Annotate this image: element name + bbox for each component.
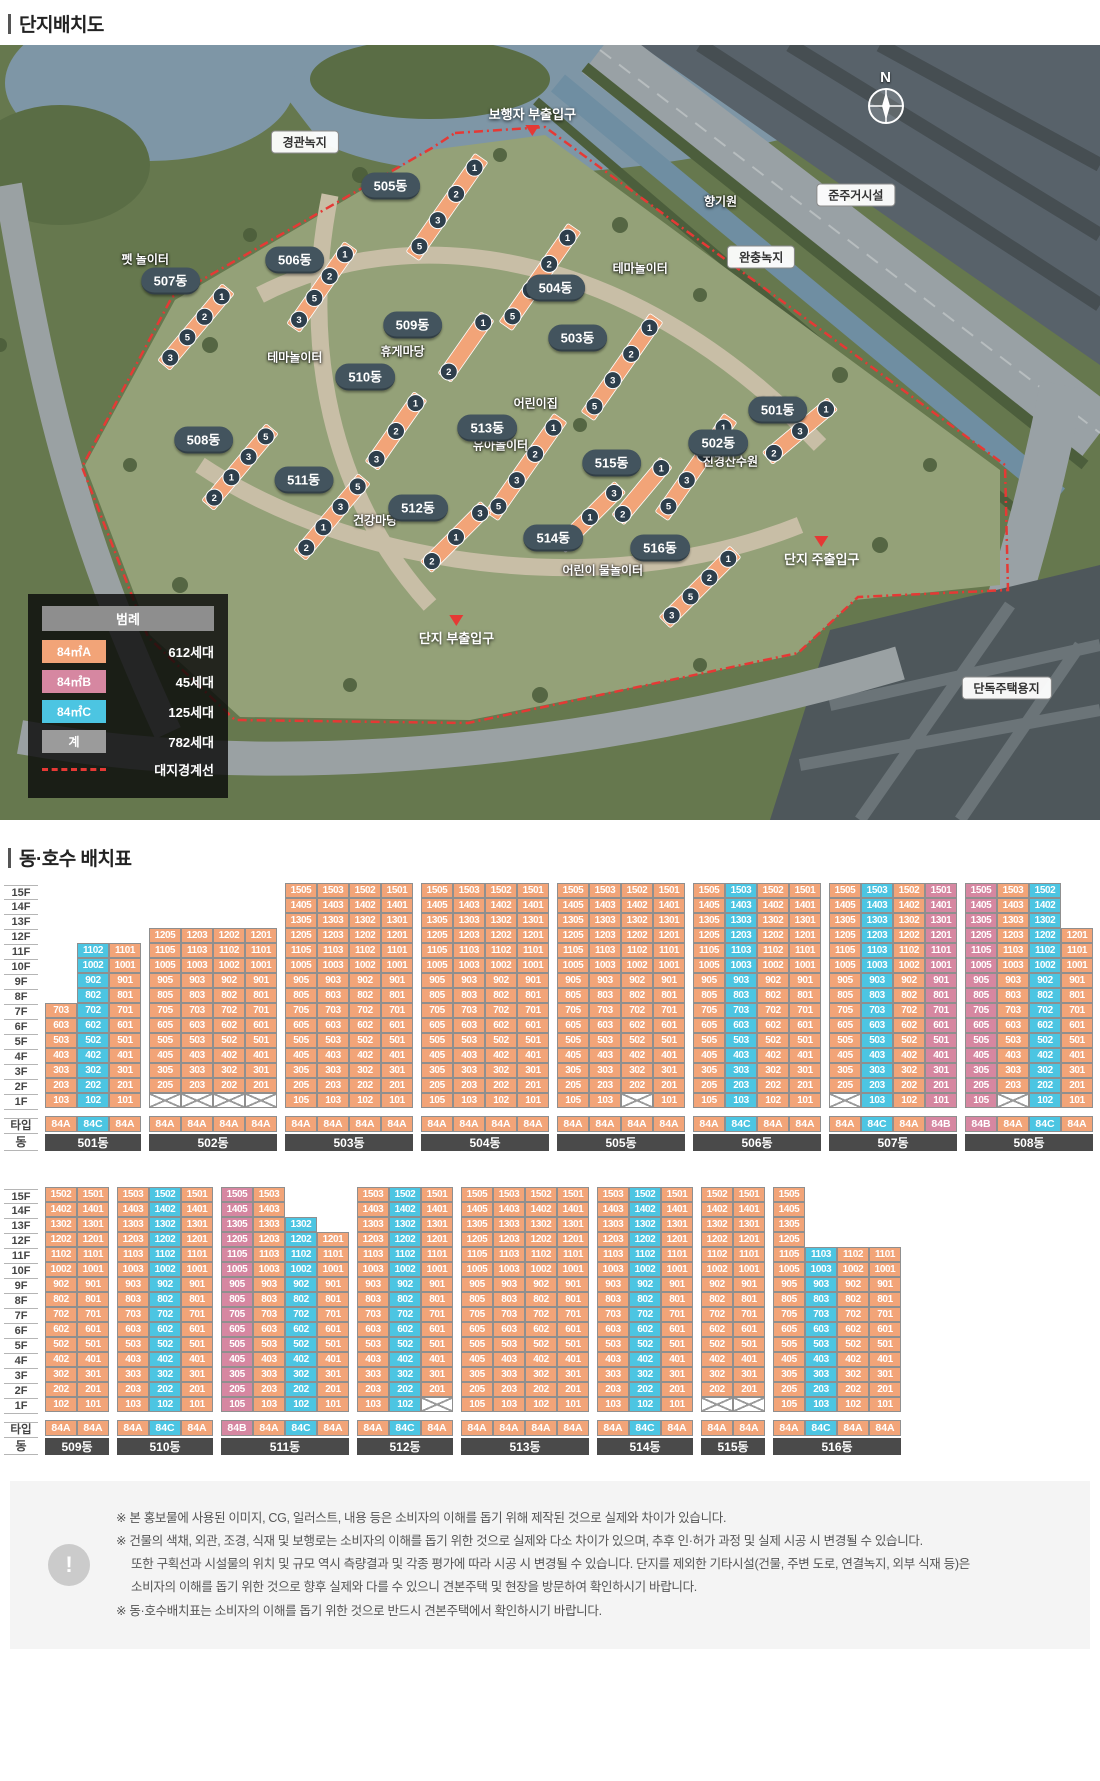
unit-cell: 902 (1029, 973, 1061, 988)
type-row: 84A84C84A84A (773, 1420, 901, 1436)
unit-cell: 1405 (557, 898, 589, 913)
floor-row: 130513031302 (965, 913, 1093, 928)
building-name-bar: 515동 (701, 1438, 765, 1455)
floor-row: 302301 (45, 1367, 109, 1382)
unit-cell: 903 (357, 1277, 389, 1292)
unit-cell: 905 (285, 973, 317, 988)
empty-slot (869, 1187, 901, 1202)
unit-cell: 1203 (589, 928, 621, 943)
unit-cell: 903 (861, 973, 893, 988)
floor-row: 1005100310021001 (557, 958, 685, 973)
unit-cell: 1502 (45, 1187, 77, 1202)
unit-cell: 605 (829, 1018, 861, 1033)
floor-row: 1005100310021001 (773, 1262, 901, 1277)
unit-cell: 301 (381, 1063, 413, 1078)
unit-cell: 205 (149, 1078, 181, 1093)
floor-row: 605603602601 (149, 1018, 277, 1033)
type-row: 84B84A84C84A (221, 1420, 349, 1436)
unit-grid-row-2: 15F14F13F12F11F10F9F8F7F6F5F4F3F2F1F타입동1… (4, 1187, 1100, 1455)
unit-cell: 501 (557, 1337, 589, 1352)
unit-cell: 1003 (357, 1262, 389, 1277)
unit-cell: 84A (181, 1420, 213, 1436)
empty-slot (837, 1202, 869, 1217)
type-row: 84A84A84A84A (557, 1116, 685, 1132)
unit-cell: 1102 (45, 1247, 77, 1262)
unit-cell: 402 (77, 1048, 109, 1063)
floor-row: 505503502501 (557, 1033, 685, 1048)
unit-cell: 1302 (1029, 913, 1061, 928)
unit-cell: 602 (621, 1018, 653, 1033)
unit-cell: 903 (805, 1277, 837, 1292)
floor-label: 4F (4, 1354, 38, 1369)
unit-cell: 1005 (965, 958, 997, 973)
disclaimer-line: ※ 건물의 색채, 외관, 조경, 식재 및 보행로는 소비자의 이해를 돕기 … (116, 1530, 1070, 1553)
floor-row: 100310021001 (597, 1262, 693, 1277)
type-row: 84A84A84A84A (149, 1116, 277, 1132)
unit-cell: 1103 (997, 943, 1029, 958)
floor-row: 1105110311021101 (461, 1247, 589, 1262)
unit-cell: 603 (589, 1018, 621, 1033)
building-label-pill: 516동 (630, 534, 690, 561)
unit-cell: 101 (381, 1093, 413, 1108)
unit-cell: 901 (925, 973, 957, 988)
unit-cell: 605 (149, 1018, 181, 1033)
unit-cell: 1301 (925, 913, 957, 928)
disclaimer-lines: ※ 본 홍보물에 사용된 이미지, CG, 일러스트, 내용 등은 소비자의 이… (116, 1507, 1070, 1623)
floor-axis: 15F14F13F12F11F10F9F8F7F6F5F4F3F2F1F타입동 (4, 885, 38, 1151)
unit-cell: 303 (453, 1063, 485, 1078)
floor-label: 10F (4, 1264, 38, 1279)
unit-cell: 803 (117, 1292, 149, 1307)
facility-label: 어린이집 (514, 395, 558, 412)
unit-cell: 802 (285, 1292, 317, 1307)
unit-cell: 84A (181, 1116, 213, 1132)
unit-cell: 202 (77, 1078, 109, 1093)
legend-item-boundary: 대지경계선 (42, 760, 214, 779)
type-row: 84A84C84A (357, 1420, 453, 1436)
unit-cell: 505 (149, 1033, 181, 1048)
unit-cell: 903 (253, 1277, 285, 1292)
floor-row: 202201 (45, 1382, 109, 1397)
unit-cell: 202 (389, 1382, 421, 1397)
floor-label: 14F (4, 1204, 38, 1219)
unit-cell: 605 (421, 1018, 453, 1033)
type-row: 84A84C84A (117, 1420, 213, 1436)
unit-cell: 401 (245, 1048, 277, 1063)
floor-row: 140314021401 (357, 1202, 453, 1217)
unit-cell: 401 (557, 1352, 589, 1367)
unit-cell: 1305 (557, 913, 589, 928)
floor-row: 602601 (45, 1322, 109, 1337)
unit-cell: 803 (317, 988, 349, 1003)
unit-cell: 1502 (485, 883, 517, 898)
unit-cell: 503 (317, 1033, 349, 1048)
unit-cell: 1301 (421, 1217, 453, 1232)
unit-cell: 1203 (253, 1232, 285, 1247)
floor-label: 7F (4, 1309, 38, 1324)
building-stack-513동: 1505150315021501140514031402140113051303… (461, 1187, 589, 1455)
unit-cell: 401 (77, 1352, 109, 1367)
unit-cell: 203 (45, 1078, 77, 1093)
floor-row: 205203202201 (965, 1078, 1093, 1093)
unit-cell: 1001 (421, 1262, 453, 1277)
floor-row: 1105110311021101 (829, 943, 957, 958)
unit-cell: 303 (45, 1063, 77, 1078)
unit-cell: 105 (421, 1093, 453, 1108)
unit-cell: 902 (757, 973, 789, 988)
floor-row: 405403402401 (149, 1048, 277, 1063)
building-label-pill: 511동 (274, 466, 333, 493)
unit-cell: 403 (117, 1352, 149, 1367)
unit-cell: 1103 (725, 943, 757, 958)
floor-row: 203202201 (45, 1078, 141, 1093)
unit-cell: 801 (789, 988, 821, 1003)
floor-label: 7F (4, 1005, 38, 1020)
unit-cell: 84A (117, 1420, 149, 1436)
unit-cell: 1503 (493, 1187, 525, 1202)
building-name-bar: 501동 (45, 1134, 141, 1151)
unit-cell: 802 (213, 988, 245, 1003)
unit-cell: 1405 (221, 1202, 253, 1217)
unit-cell: 405 (149, 1048, 181, 1063)
unit-cell: 1305 (421, 913, 453, 928)
unit-cell: 601 (869, 1322, 901, 1337)
unit-cell: 702 (837, 1307, 869, 1322)
unit-cell: 601 (557, 1322, 589, 1337)
unit-cell: 1105 (773, 1247, 805, 1262)
type-row: 84A84A84A84A (285, 1116, 413, 1132)
legend-item-84c: 84㎡C 125세대 (42, 700, 214, 723)
unit-cell: 803 (805, 1292, 837, 1307)
unit-cell: 703 (45, 1003, 77, 1018)
floor-row: 605603602601 (221, 1322, 349, 1337)
unit-cell: 802 (893, 988, 925, 1003)
floor-row: 505503502501 (965, 1033, 1093, 1048)
unit-cell: 1101 (869, 1247, 901, 1262)
type-row: 84A84A (701, 1420, 765, 1436)
unit-cell: 703 (117, 1307, 149, 1322)
empty-slot (317, 1187, 349, 1202)
floor-row: 705703702701 (965, 1003, 1093, 1018)
unit-cell: 202 (837, 1382, 869, 1397)
unit-cell: 84C (285, 1420, 317, 1436)
floor-row: 102101 (45, 1397, 109, 1412)
unit-cell: 601 (925, 1018, 957, 1033)
unit-cell: 84A (453, 1116, 485, 1132)
unit-cell: 803 (181, 988, 213, 1003)
unit-cell: 1205 (421, 928, 453, 943)
unit-cell: 501 (661, 1337, 693, 1352)
unit-cell: 84A (493, 1420, 525, 1436)
entrance-marker-icon (815, 536, 829, 547)
unit-cell: 202 (1029, 1078, 1061, 1093)
unit-cell: 1503 (597, 1187, 629, 1202)
floor-row: 203202201 (357, 1382, 453, 1397)
unit-cell: 84A (45, 1420, 77, 1436)
unit-cell: 501 (77, 1337, 109, 1352)
floor-label: 1F (4, 1095, 38, 1110)
unit-cell: 1403 (493, 1202, 525, 1217)
unit-cell: 205 (693, 1078, 725, 1093)
unit-cell: 602 (349, 1018, 381, 1033)
floor-row: 1505150315021501 (557, 883, 685, 898)
unit-cell: 503 (181, 1033, 213, 1048)
legend-swatch-total: 계 (42, 730, 106, 753)
unit-cell: 503 (45, 1033, 77, 1048)
unit-cell: 601 (517, 1018, 549, 1033)
unit-cell: 203 (725, 1078, 757, 1093)
floor-row: 205203202201 (221, 1382, 349, 1397)
unit-cell: 1403 (597, 1202, 629, 1217)
unit-cell: 1202 (701, 1232, 733, 1247)
floor-row: 803802801 (597, 1292, 693, 1307)
floor-row: 503502501 (45, 1033, 141, 1048)
unit-cell: 305 (829, 1063, 861, 1078)
unit-cell: 1403 (861, 898, 893, 913)
floor-row: 705703702701 (285, 1003, 413, 1018)
unit-cell: 401 (181, 1352, 213, 1367)
disclaimer-line: ※ 동·호수배치표는 소비자의 이해를 돕기 위한 것으로 반드시 견본주택에서… (116, 1600, 1070, 1623)
unit-cell: 402 (525, 1352, 557, 1367)
unit-cell: 402 (837, 1352, 869, 1367)
unit-cell: 201 (109, 1078, 141, 1093)
unit-cell: 1501 (733, 1187, 765, 1202)
floor-row: 405403402401 (829, 1048, 957, 1063)
unit-cell: 503 (253, 1337, 285, 1352)
unit-cell: 302 (149, 1367, 181, 1382)
floor-row: 605603602601 (965, 1018, 1093, 1033)
floor-row: 1105110311021101 (773, 1247, 901, 1262)
floor-label: 4F (4, 1050, 38, 1065)
unit-cell: 201 (869, 1382, 901, 1397)
building-stack-507동: 1505150315021501140514031402140113051303… (829, 883, 957, 1151)
unit-cell: 405 (461, 1352, 493, 1367)
floor-row: 1205120312021201 (693, 928, 821, 943)
unit-cell: 702 (1029, 1003, 1061, 1018)
unit-cell: 302 (837, 1367, 869, 1382)
unit-cell: 401 (517, 1048, 549, 1063)
building-name-bar: 509동 (45, 1438, 109, 1455)
empty-slot (869, 1232, 901, 1247)
unit-cell: 802 (837, 1292, 869, 1307)
unit-cell: 1502 (893, 883, 925, 898)
unit-cell: 903 (117, 1277, 149, 1292)
empty-slot (805, 1202, 837, 1217)
unit-cell: 302 (525, 1367, 557, 1382)
building-label-pill: 504동 (526, 275, 586, 302)
unit-cell: 1501 (181, 1187, 213, 1202)
unit-cell: 1505 (557, 883, 589, 898)
unit-cell: 1001 (245, 958, 277, 973)
unit-cell: 205 (421, 1078, 453, 1093)
empty-slot (1061, 913, 1093, 928)
unit-cell: 1202 (349, 928, 381, 943)
unit-cell: 1005 (421, 958, 453, 973)
unit-cell: 1102 (485, 943, 517, 958)
unit-cell: 1001 (653, 958, 685, 973)
unit-cell: 302 (77, 1063, 109, 1078)
unit-cell: 1001 (789, 958, 821, 973)
unit-cell: 1401 (733, 1202, 765, 1217)
unit-cell: 702 (525, 1307, 557, 1322)
unit-cell: 602 (213, 1018, 245, 1033)
unit-cell: 1102 (629, 1247, 661, 1262)
floor-row: 10021001 (45, 1262, 109, 1277)
floor-label: 10F (4, 960, 38, 975)
unit-cell: 805 (285, 988, 317, 1003)
unit-cell: 84C (861, 1116, 893, 1132)
unit-cell: 701 (653, 1003, 685, 1018)
floor-row: 1205 (773, 1232, 901, 1247)
unit-cell: 84A (317, 1420, 349, 1436)
floor-row: 12021201 (45, 1232, 109, 1247)
unit-cell: 84A (349, 1116, 381, 1132)
unit-cell: 402 (45, 1352, 77, 1367)
unit-cell: 203 (997, 1078, 1029, 1093)
unit-cell: 1203 (997, 928, 1029, 943)
unit-cell: 802 (349, 988, 381, 1003)
floor-row: 505503502501 (285, 1033, 413, 1048)
unit-cell: 402 (1029, 1048, 1061, 1063)
unit-cell-excluded (421, 1397, 453, 1412)
unit-cell: 603 (597, 1322, 629, 1337)
unit-cell: 403 (997, 1048, 1029, 1063)
unit-cell: 403 (597, 1352, 629, 1367)
type-row: 84A84A84A84A (461, 1420, 589, 1436)
unit-cell: 1203 (597, 1232, 629, 1247)
floor-row: 1305130313021301 (693, 913, 821, 928)
unit-cell: 1305 (965, 913, 997, 928)
unit-cell: 802 (701, 1292, 733, 1307)
unit-cell: 901 (653, 973, 685, 988)
unit-cell: 501 (789, 1033, 821, 1048)
boundary-dash-icon (42, 768, 106, 771)
unit-cell: 1505 (829, 883, 861, 898)
unit-cell: 302 (349, 1063, 381, 1078)
unit-cell: 303 (117, 1367, 149, 1382)
unit-cell: 1002 (349, 958, 381, 973)
unit-cell: 1105 (421, 943, 453, 958)
unit-cell: 202 (485, 1078, 517, 1093)
unit-cell: 302 (629, 1367, 661, 1382)
unit-cell-excluded (621, 1093, 653, 1108)
unit-cell: 203 (253, 1382, 285, 1397)
unit-cell: 202 (621, 1078, 653, 1093)
unit-cell: 1501 (925, 883, 957, 898)
unit-cell: 601 (789, 1018, 821, 1033)
unit-cell: 1402 (621, 898, 653, 913)
unit-cell: 1401 (789, 898, 821, 913)
floor-row: 103102101 (45, 1093, 141, 1108)
unit-cell: 902 (77, 973, 109, 988)
floor-row: 305303302301 (421, 1063, 549, 1078)
unit-cell: 701 (109, 1003, 141, 1018)
floor-row: 905903902901 (285, 973, 413, 988)
unit-cell: 505 (461, 1337, 493, 1352)
unit-cell: 101 (557, 1397, 589, 1412)
unit-cell: 202 (893, 1078, 925, 1093)
unit-cell: 401 (661, 1352, 693, 1367)
unit-cell: 1503 (253, 1187, 285, 1202)
unit-cell: 1003 (493, 1262, 525, 1277)
empty-slot (317, 1202, 349, 1217)
unit-cell: 1503 (453, 883, 485, 898)
unit-cell: 505 (557, 1033, 589, 1048)
floor-row: 1405140314021401 (421, 898, 549, 913)
unit-cell: 1301 (733, 1217, 765, 1232)
unit-cell: 1003 (181, 958, 213, 973)
floor-row: 110311021101 (597, 1247, 693, 1262)
floor-row: 14021401 (45, 1202, 109, 1217)
unit-cell: 1301 (517, 913, 549, 928)
unit-cell: 1103 (253, 1247, 285, 1262)
unit-cell: 84A (893, 1116, 925, 1132)
floor-row: 303302301 (597, 1367, 693, 1382)
floor-row: 103102101 (829, 1093, 957, 1108)
floor-row: 902901 (45, 1277, 109, 1292)
floor-label: 8F (4, 990, 38, 1005)
unit-cell: 1205 (461, 1232, 493, 1247)
unit-cell: 902 (149, 1277, 181, 1292)
floor-label: 14F (4, 900, 38, 915)
floor-row: 1405140314021401 (461, 1202, 589, 1217)
floor-row: 705703702701 (421, 1003, 549, 1018)
unit-cell: 801 (925, 988, 957, 1003)
empty-slot (317, 1217, 349, 1232)
unit-cell: 702 (701, 1307, 733, 1322)
unit-grid-row-1: 15F14F13F12F11F10F9F8F7F6F5F4F3F2F1F타입동1… (4, 883, 1100, 1151)
unit-cell: 1503 (317, 883, 349, 898)
legend-title: 범례 (42, 606, 214, 631)
unit-cell: 401 (381, 1048, 413, 1063)
unit-cell: 402 (349, 1048, 381, 1063)
unit-cell: 101 (181, 1397, 213, 1412)
floor-row: 302301 (701, 1367, 765, 1382)
unit-cell: 1201 (317, 1232, 349, 1247)
unit-cell: 1001 (661, 1262, 693, 1277)
floor-row: 15021501 (45, 1187, 109, 1202)
unit-cell: 202 (757, 1078, 789, 1093)
building-label-pill: 503동 (548, 324, 608, 351)
unit-cell: 702 (349, 1003, 381, 1018)
unit-cell: 805 (149, 988, 181, 1003)
unit-cell: 1305 (829, 913, 861, 928)
unit-cell: 1302 (629, 1217, 661, 1232)
unit-cell: 1403 (997, 898, 1029, 913)
unit-cell: 1402 (757, 898, 789, 913)
floor-row: 103102101 (117, 1397, 213, 1412)
disclaimer-line: ※ 본 홍보물에 사용된 이미지, CG, 일러스트, 내용 등은 소비자의 이… (116, 1507, 1070, 1530)
floor-row: 1305130313021301 (557, 913, 685, 928)
unit-cell: 905 (461, 1277, 493, 1292)
unit-cell: 84A (285, 1116, 317, 1132)
map-label-layer: N 범례 84㎡A 612세대 84㎡B 45세대 84㎡C 125세대 (0, 45, 1100, 820)
unit-cell: 503 (357, 1337, 389, 1352)
floor-row: 1505 (773, 1187, 901, 1202)
unit-cell: 1402 (525, 1202, 557, 1217)
unit-cell: 801 (517, 988, 549, 1003)
area-label: 준주거시설 (816, 184, 895, 207)
unit-cell: 1305 (773, 1217, 805, 1232)
unit-cell: 805 (421, 988, 453, 1003)
unit-cell: 205 (557, 1078, 589, 1093)
unit-cell: 702 (389, 1307, 421, 1322)
unit-cell: 605 (693, 1018, 725, 1033)
unit-cell: 801 (661, 1292, 693, 1307)
unit-cell: 305 (149, 1063, 181, 1078)
floor-row: 405403402401 (221, 1352, 349, 1367)
building-stack-506동: 1505150315021501140514031402140113051303… (693, 883, 821, 1151)
